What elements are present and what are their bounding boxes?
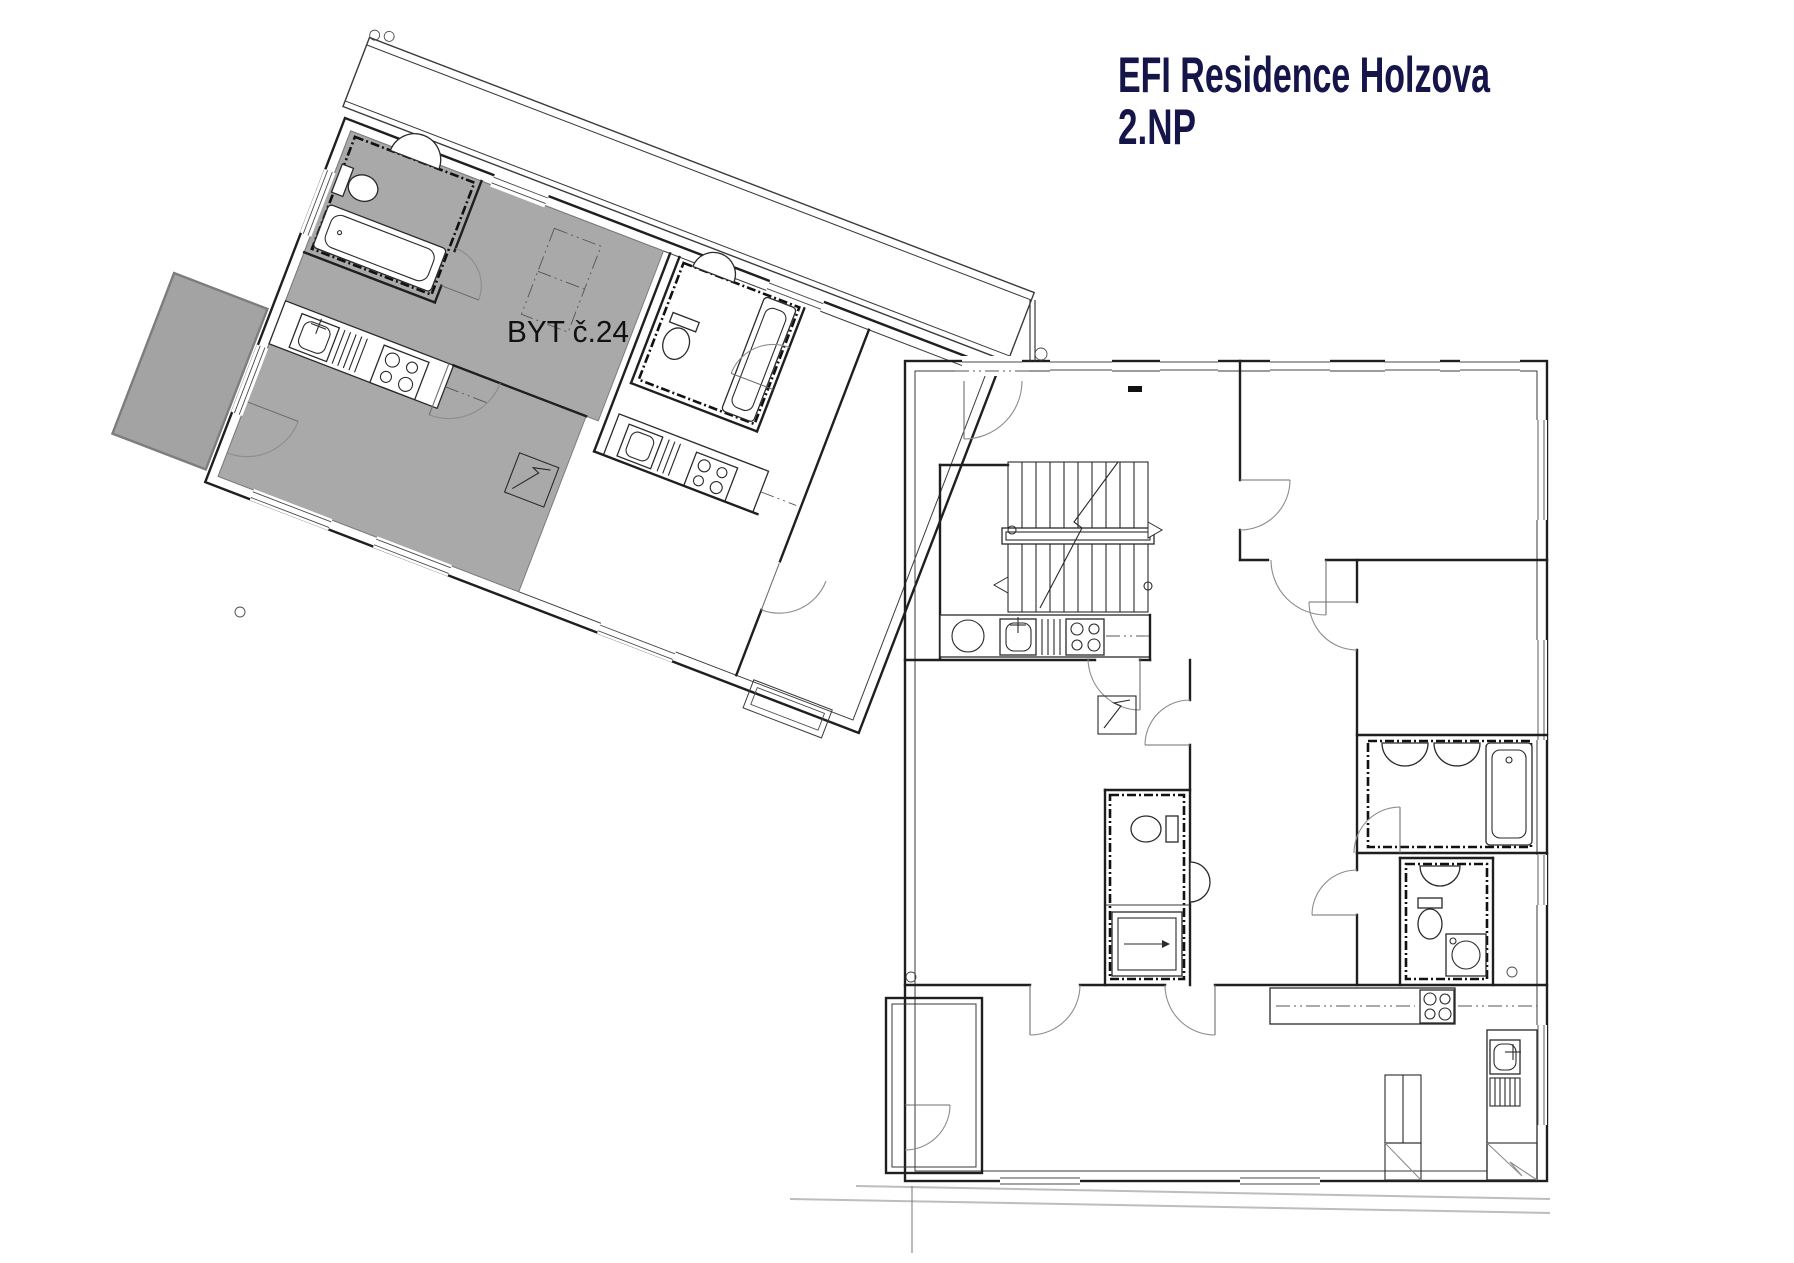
- right-wing-outer-walls: [905, 361, 1547, 1181]
- washbasin-icon: [1434, 743, 1480, 766]
- left-wing: [102, 0, 1039, 752]
- survey-marker: [235, 607, 245, 617]
- unit2-kitchen: [603, 414, 804, 526]
- plan-floor-subtitle: 2.NP: [1118, 99, 1196, 155]
- floorplan-page: EFI Residence Holzova 2.NP BYT č.24: [0, 0, 1794, 1263]
- washbasin-icon: [1382, 743, 1428, 766]
- stair-direction-arrow: [994, 577, 1008, 593]
- terrace-connector: [1030, 300, 1047, 361]
- drainer-icon: [1490, 1078, 1520, 1106]
- tall-cabinet-icon: [1385, 1075, 1421, 1180]
- washbasin-icon: [1420, 866, 1460, 886]
- kitchen-sink-icon: [1000, 617, 1036, 655]
- bottom-balcony: [886, 998, 982, 1173]
- central-bathroom: [1105, 790, 1210, 985]
- right-wing-top-windows: [1050, 358, 1520, 392]
- bathtub-icon: [1486, 743, 1532, 845]
- bottom-right-kitchen: [1270, 988, 1537, 1180]
- floor-plan-drawing: EFI Residence Holzova 2.NP BYT č.24: [0, 0, 1794, 1263]
- toilet-icon: [657, 312, 699, 363]
- stair-direction-arrow: [1148, 522, 1162, 538]
- washbasin-icon: [1190, 862, 1210, 902]
- right-top-bathroom: [1354, 735, 1547, 853]
- threshold-mark: [1128, 386, 1142, 392]
- right-bottom-bathroom: [1400, 858, 1493, 985]
- stove-icon: [1420, 990, 1454, 1023]
- right-wing: [886, 300, 1547, 1187]
- entrance: [955, 356, 1030, 439]
- shaft-icon: [1098, 696, 1136, 734]
- toilet-icon: [1418, 898, 1442, 939]
- washing-machine-icon: [1446, 934, 1486, 976]
- survey-marker: [1507, 967, 1517, 977]
- kitchen-sink-icon: [1490, 1040, 1521, 1074]
- shower-icon: [1112, 912, 1182, 976]
- window-bay: [743, 680, 832, 738]
- plan-title: EFI Residence Holzova: [1118, 47, 1491, 103]
- stove-icon: [1066, 619, 1104, 655]
- toilet-icon: [1131, 816, 1178, 842]
- highlighted-unit-label: BYT č.24: [507, 314, 629, 349]
